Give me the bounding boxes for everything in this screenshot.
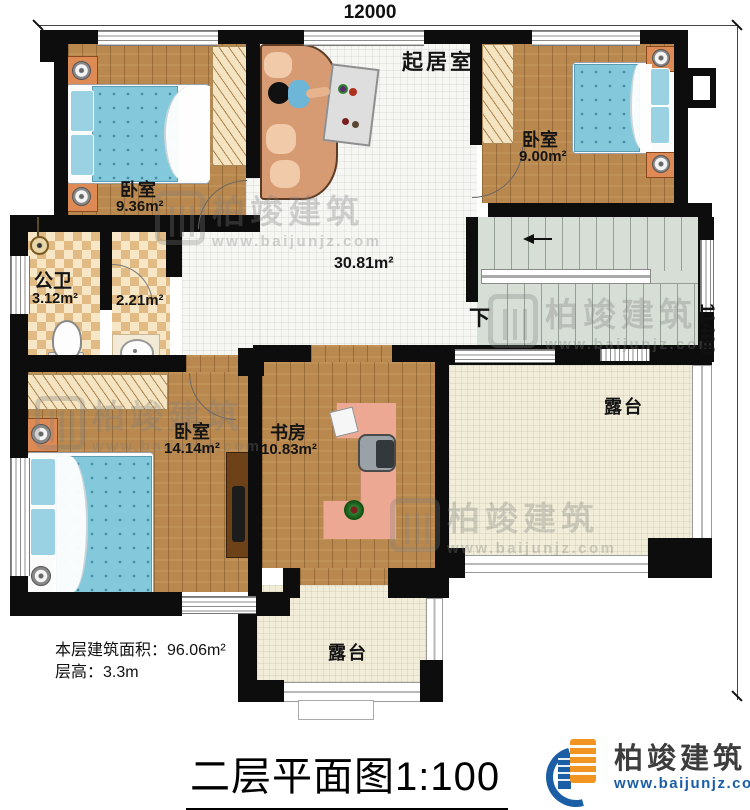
room-label-terrace-bottom: 露台 [328,644,368,662]
logo-building-orange-icon [570,739,596,783]
wall-segment [166,215,182,277]
wall-segment [10,358,28,458]
pillow [650,68,670,106]
terrace-step [298,700,374,720]
floor-height-text: 层高：3.3m [55,662,226,684]
room-label-bedroom2: 卧室 [522,131,558,149]
stair-arrow-head-icon [523,234,534,244]
pillow [70,90,94,132]
dimension-right-label: 11400 [695,299,717,359]
wall-segment [248,372,262,598]
company-logo-icon [546,737,606,799]
wall-corner-block [648,538,712,578]
wall-segment [674,30,688,203]
drawing-scale: 1:100 [395,755,500,799]
pillow [30,508,56,556]
room-label-bathroom: 公卫 [34,272,72,291]
flower-icon [349,88,357,96]
bed-sheet-fold [164,86,210,180]
window [98,30,218,46]
company-logo: 柏竣建筑 www.baijunjz.com [546,737,750,799]
parapet [692,365,712,555]
wardrobe [482,44,514,144]
drawing-title: 二层平面图1:100 [186,744,508,810]
room-label-bedroom3: 卧室 [174,423,210,441]
company-url: www.baijunjz.com [614,775,750,792]
floor-hall-corridor [182,217,260,358]
window [182,596,256,614]
drawing-title-text: 二层平面图 [190,755,395,799]
lamp-icon [652,49,670,67]
staircase [477,217,698,345]
wall-corner-block [420,660,443,702]
wall-segment [253,345,311,362]
lamp-icon [72,61,91,80]
room-area-closet: 2.21m² [116,293,164,308]
wall-corner-block [238,680,284,702]
wall-segment [10,355,186,372]
tv-icon [232,486,245,542]
bed-sheet-fold [54,456,88,592]
floor-area-text: 本层建筑面积：96.06m² [55,640,226,662]
wall-segment [218,30,304,44]
wall-segment [10,218,28,256]
room-label-bedroom1: 卧室 [120,181,156,199]
terrace-door [455,349,555,363]
flower-icon [338,84,348,94]
sofa-cushion [266,124,296,154]
terrace-railing [600,349,650,361]
floorplan-canvas: 12000 11400 [0,0,750,810]
wall-segment [488,203,712,217]
parapet [257,682,443,702]
bed-sheet-fold [630,64,652,150]
table-item [352,121,359,128]
window [532,30,640,46]
pillow [70,134,94,176]
wardrobe [212,46,250,166]
room-label-study: 书房 [270,424,306,442]
room-area-bedroom2: 9.00m² [519,149,567,164]
sofa-cushion [270,160,300,188]
flue-opening [693,76,710,100]
window [304,30,424,46]
stair-handrail [481,269,651,284]
wall-segment [466,217,478,302]
lamp-icon [652,155,670,173]
toilet-icon [52,320,82,360]
lamp-icon [31,424,51,444]
company-name: 柏竣建筑 [614,744,750,774]
sofa-cushion [264,52,292,78]
stair-treads-upper [477,217,698,271]
stair-arrow-line [534,238,552,240]
wall-segment [246,30,260,178]
room-area-living: 30.81m² [334,256,394,272]
stairs-down-label: 下 [469,308,490,329]
basin-drain [133,349,137,353]
pillow [650,106,670,144]
room-area-bedroom1: 9.36m² [116,199,164,214]
pendant-lamp-icon [30,236,49,255]
pillow [30,458,56,506]
wall-segment [100,232,112,310]
floor-terrace-right [443,365,692,555]
window [10,256,30,314]
parapet [426,598,443,664]
wall-segment [283,568,300,598]
dimension-line-right [737,26,738,700]
table-item [342,118,349,125]
window [10,458,30,576]
wall-segment [54,30,68,222]
wall-segment [10,592,182,616]
room-area-bathroom: 3.12m² [32,292,78,307]
room-label-terrace-right: 露台 [604,398,644,416]
stair-treads-lower [507,284,698,345]
dimension-line-top [38,25,738,26]
room-label-living: 起居室 [402,52,474,73]
lamp-icon [72,187,91,206]
dimension-top-label: 12000 [330,2,410,24]
person-head [268,82,290,104]
floor-door-threshold [246,178,260,217]
floor-threshold [311,345,392,362]
wardrobe [26,374,168,410]
wall-segment [392,345,438,362]
room-area-bedroom3: 14.14m² [164,441,220,456]
wall-segment [10,314,28,358]
lamp-icon [31,566,51,586]
wall-corner-block [440,548,465,578]
coffee-table [322,63,379,146]
wall-segment [388,568,436,598]
floor-info: 本层建筑面积：96.06m² 层高：3.3m [55,640,226,683]
room-area-study: 10.83m² [261,442,317,457]
monitor-icon [376,440,394,468]
plant-icon [344,500,364,520]
floor-threshold [186,355,238,372]
